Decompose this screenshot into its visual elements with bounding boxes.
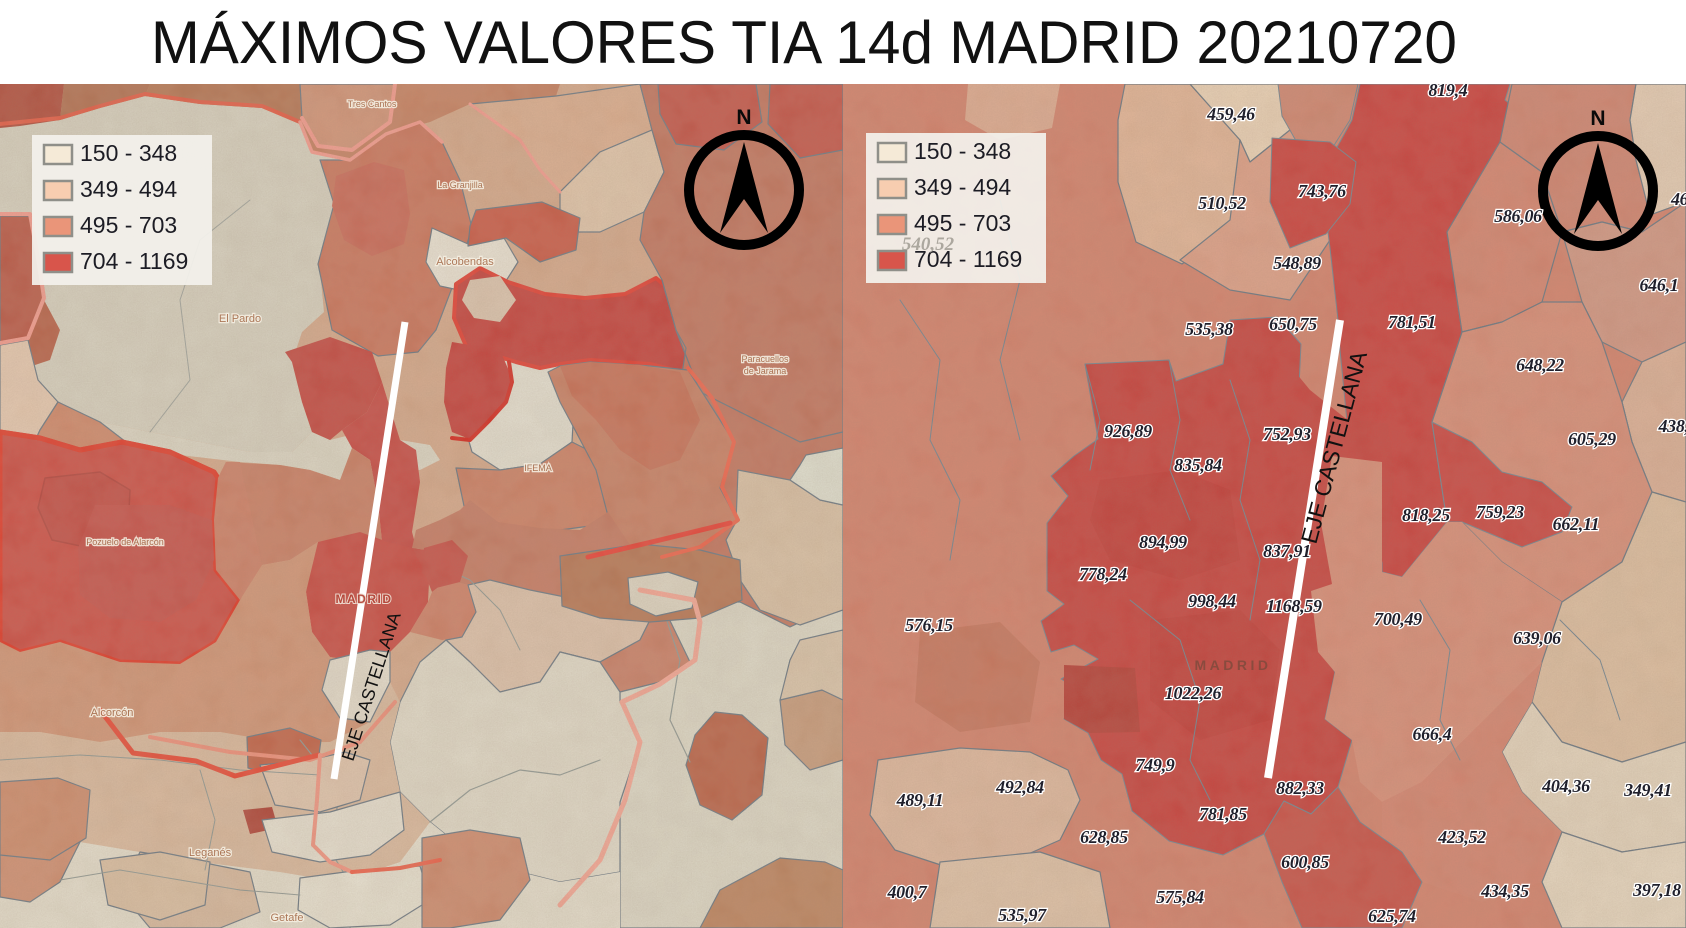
svg-text:MADRID: MADRID: [336, 592, 393, 606]
svg-text:535,38: 535,38: [1185, 319, 1233, 339]
svg-text:N: N: [1590, 107, 1605, 130]
svg-text:781,85: 781,85: [1199, 804, 1247, 824]
svg-text:MADRID: MADRID: [1195, 657, 1272, 673]
svg-text:492,84: 492,84: [995, 777, 1044, 797]
svg-text:459,46: 459,46: [1206, 104, 1255, 124]
svg-text:998,44: 998,44: [1188, 591, 1236, 611]
svg-text:749,9: 749,9: [1135, 755, 1174, 775]
svg-text:605,29: 605,29: [1568, 429, 1616, 449]
svg-text:N: N: [736, 106, 751, 129]
svg-text:625,74: 625,74: [1368, 906, 1416, 926]
svg-text:434,35: 434,35: [1480, 881, 1529, 901]
svg-text:489,11: 489,11: [896, 790, 944, 810]
svg-text:349 - 494: 349 - 494: [80, 176, 177, 202]
svg-text:Alcobendas: Alcobendas: [436, 256, 494, 268]
svg-text:La Granjilla: La Granjilla: [437, 180, 483, 190]
svg-text:752,93: 752,93: [1263, 424, 1311, 444]
svg-text:650,75: 650,75: [1269, 314, 1317, 334]
svg-text:150 - 348: 150 - 348: [914, 138, 1011, 164]
svg-text:700,49: 700,49: [1374, 609, 1422, 629]
svg-text:743,76: 743,76: [1298, 181, 1346, 201]
svg-text:662,11: 662,11: [1553, 514, 1600, 534]
svg-text:495 - 703: 495 - 703: [914, 210, 1011, 236]
svg-text:495 - 703: 495 - 703: [80, 212, 177, 238]
svg-text:Pozuelo de Alarcón: Pozuelo de Alarcón: [86, 537, 164, 547]
svg-text:Paracuellos: Paracuellos: [741, 354, 789, 364]
svg-text:400,7: 400,7: [886, 882, 927, 902]
svg-text:IFEMA: IFEMA: [524, 463, 552, 473]
svg-text:460: 460: [1670, 189, 1686, 209]
svg-text:510,52: 510,52: [1198, 193, 1246, 213]
svg-text:600,85: 600,85: [1281, 852, 1329, 872]
svg-text:648,22: 648,22: [1516, 355, 1564, 375]
svg-text:MÁXIMOS VALORES TIA 14d MADRID: MÁXIMOS VALORES TIA 14d MADRID 20210720: [151, 9, 1457, 76]
svg-text:1022,26: 1022,26: [1165, 683, 1222, 703]
svg-text:404,36: 404,36: [1541, 776, 1590, 796]
svg-text:882,33: 882,33: [1276, 778, 1324, 798]
svg-text:El Pardo: El Pardo: [219, 313, 261, 325]
svg-text:438,3: 438,3: [1657, 416, 1686, 436]
svg-text:781,51: 781,51: [1388, 312, 1436, 332]
svg-text:666,4: 666,4: [1412, 724, 1451, 744]
svg-text:818,25: 818,25: [1402, 505, 1450, 525]
svg-text:894,99: 894,99: [1139, 532, 1187, 552]
svg-text:704 - 1169: 704 - 1169: [80, 248, 188, 274]
svg-text:548,89: 548,89: [1273, 253, 1321, 273]
svg-text:Tres Cantos: Tres Cantos: [348, 99, 397, 109]
svg-text:646,1: 646,1: [1639, 275, 1678, 295]
svg-text:586,06: 586,06: [1494, 206, 1542, 226]
svg-text:Leganés: Leganés: [189, 847, 232, 859]
svg-text:Alcorcón: Alcorcón: [91, 707, 134, 719]
svg-text:778,24: 778,24: [1079, 564, 1127, 584]
svg-text:835,84: 835,84: [1174, 455, 1222, 475]
svg-text:639,06: 639,06: [1513, 628, 1561, 648]
svg-text:819,4: 819,4: [1428, 80, 1467, 100]
svg-text:575,84: 575,84: [1156, 887, 1204, 907]
svg-text:150 - 348: 150 - 348: [80, 140, 177, 166]
svg-text:1168,59: 1168,59: [1266, 596, 1322, 616]
svg-text:837,91: 837,91: [1263, 541, 1311, 561]
svg-text:628,85: 628,85: [1080, 827, 1128, 847]
svg-text:423,52: 423,52: [1437, 827, 1486, 847]
svg-text:de Jarama: de Jarama: [744, 366, 787, 376]
svg-text:535,97: 535,97: [998, 905, 1047, 925]
svg-text:349 - 494: 349 - 494: [914, 174, 1011, 200]
svg-text:Getafe: Getafe: [270, 912, 303, 924]
svg-text:926,89: 926,89: [1104, 421, 1152, 441]
svg-text:349,41: 349,41: [1623, 780, 1672, 800]
svg-text:759,23: 759,23: [1476, 502, 1524, 522]
svg-text:397,18: 397,18: [1632, 880, 1681, 900]
svg-text:540,52: 540,52: [902, 234, 955, 255]
svg-text:576,15: 576,15: [905, 615, 953, 635]
